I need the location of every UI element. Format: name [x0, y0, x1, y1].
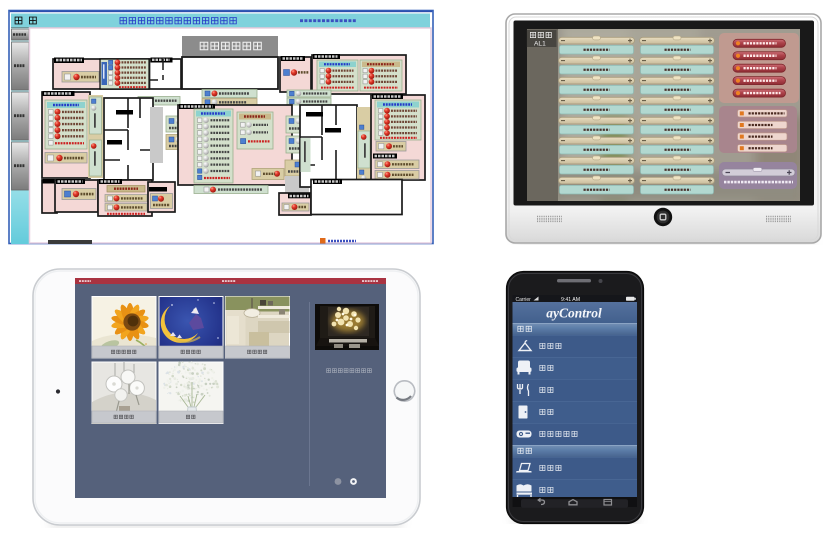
svg-text:AL1: AL1: [534, 41, 546, 48]
svg-text:Carrier: Carrier: [516, 297, 532, 303]
svg-text:ayControl: ayControl: [546, 306, 602, 321]
svg-text:9:41 AM: 9:41 AM: [561, 297, 580, 303]
